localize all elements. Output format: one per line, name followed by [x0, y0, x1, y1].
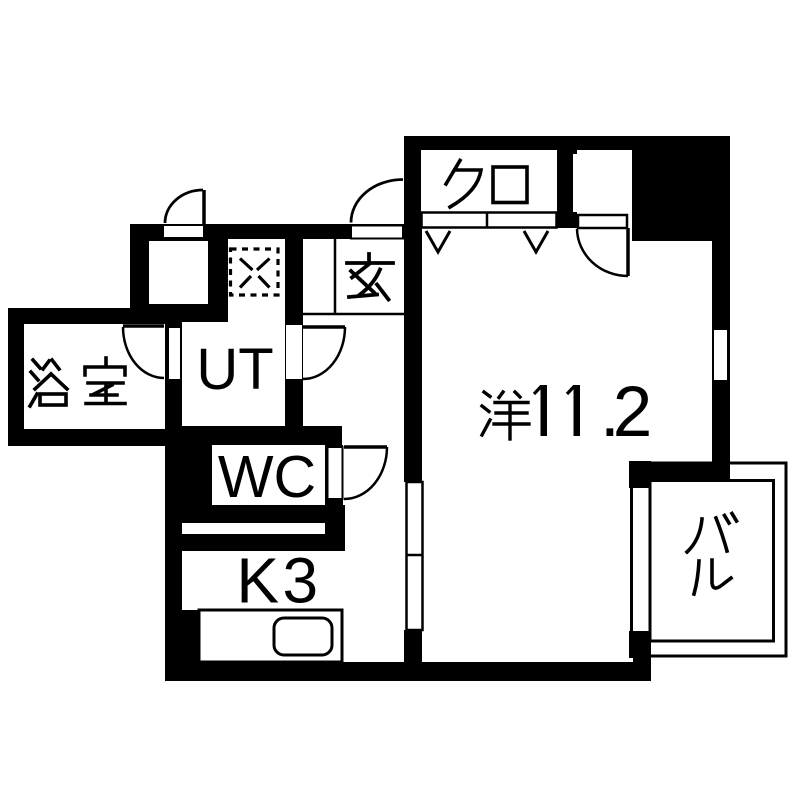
svg-text:.2: .2: [600, 373, 649, 452]
svg-text:K3: K3: [236, 545, 321, 617]
svg-text:UT: UT: [196, 337, 273, 402]
svg-text:WC: WC: [218, 444, 316, 510]
